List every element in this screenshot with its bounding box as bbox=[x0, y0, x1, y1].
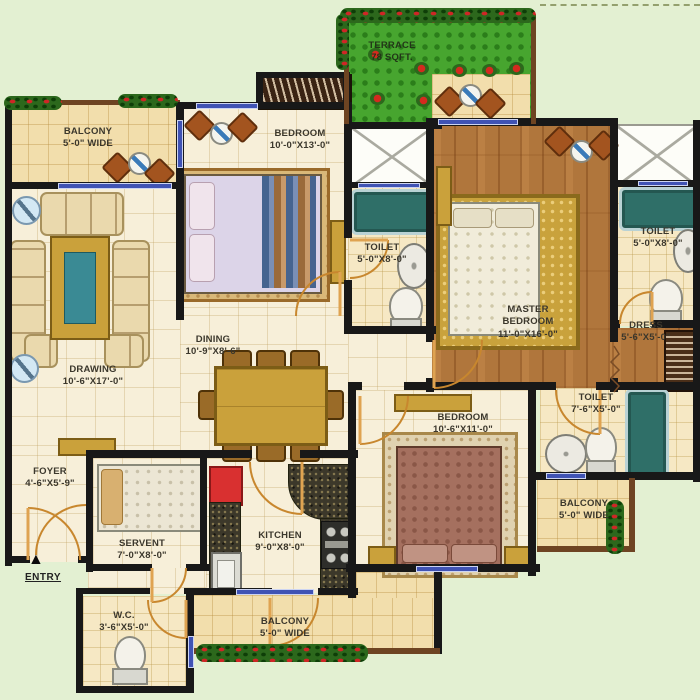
flower-icon bbox=[452, 64, 467, 77]
entry-arrow-icon: ▲ bbox=[28, 552, 44, 568]
room-label-balcony-right: BALCONY 5'-0" WIDE bbox=[540, 498, 628, 523]
room-dims: 5'-0"X8'-0" bbox=[622, 238, 694, 250]
room-label-balcony-bottom: BALCONY 5'-0" WIDE bbox=[230, 616, 340, 641]
room-dims: 10'-0"X13'-0" bbox=[250, 140, 350, 152]
flower-garland-icon bbox=[340, 8, 536, 23]
room-label-terrace: TERRACE 78 SQFT. bbox=[352, 40, 432, 65]
room-dims: 4'-6"X5'-9" bbox=[10, 478, 90, 490]
room-label-kitchen: KITCHEN 9'-0"X8'-0" bbox=[238, 530, 322, 555]
room-name: TERRACE bbox=[352, 40, 432, 52]
room-dims: 7'-6"X5'-0" bbox=[552, 404, 640, 416]
room-dims: 10'-9"X8'-6" bbox=[168, 346, 258, 358]
room-label-bedroom-bottom: BEDROOM 10'-6"X11'-0" bbox=[408, 412, 518, 437]
room-name: KITCHEN bbox=[238, 530, 322, 542]
room-name: BALCONY bbox=[540, 498, 628, 510]
flower-garland-icon bbox=[4, 96, 62, 110]
room-dims: 78 SQFT. bbox=[352, 52, 432, 64]
room-label-toilet-common: TOILET 7'-6"X5'-0" bbox=[552, 392, 640, 417]
room-label-bedroom-top: BEDROOM 10'-0"X13'-0" bbox=[250, 128, 350, 153]
flower-garland-icon bbox=[336, 14, 349, 70]
room-name: W.C. bbox=[84, 610, 164, 622]
room-dims: 5'-0" WIDE bbox=[540, 510, 628, 522]
flower-icon bbox=[370, 92, 385, 105]
room-dims: 10'-6"X17'-0" bbox=[48, 376, 138, 388]
room-name: SERVENT bbox=[98, 538, 186, 550]
room-label-drawing: DRAWING 10'-6"X17'-0" bbox=[48, 364, 138, 389]
entry-label: ENTRY bbox=[10, 572, 76, 583]
room-label-dining: DINING 10'-9"X8'-6" bbox=[168, 334, 258, 359]
room-label-wc: W.C. 3'-6"X5'-0" bbox=[84, 610, 164, 635]
room-label-dress: DRESS 5'-6"X5'-0" bbox=[608, 320, 684, 345]
room-label-servant: SERVENT 7'-0"X8'-0" bbox=[98, 538, 186, 563]
room-label-balcony-top-left: BALCONY 5'-0" WIDE bbox=[28, 126, 148, 151]
room-dims: 7'-0"X8'-0" bbox=[98, 550, 186, 562]
room-name: TOILET bbox=[622, 226, 694, 238]
room-dims: 9'-0"X8'-0" bbox=[238, 542, 322, 554]
flower-icon bbox=[416, 94, 431, 107]
room-name: DRAWING bbox=[48, 364, 138, 376]
floor-plan: ▲ ENTRY BALCONY 5'-0" WIDE BEDROOM 10'-0… bbox=[0, 0, 700, 700]
room-label-foyer: FOYER 4'-6"X5'-9" bbox=[10, 466, 90, 491]
room-name: TOILET bbox=[552, 392, 640, 404]
room-dims: 5'-0"X8'-0" bbox=[348, 254, 416, 266]
room-name: TOILET bbox=[348, 242, 416, 254]
room-name: MASTER BEDROOM bbox=[490, 304, 566, 329]
door-leaf bbox=[28, 240, 652, 646]
doors-overlay bbox=[0, 0, 700, 700]
flower-garland-icon bbox=[118, 94, 178, 108]
room-dims: 5'-0" WIDE bbox=[230, 628, 340, 640]
room-dims: 5'-0" WIDE bbox=[28, 138, 148, 150]
room-name: DRESS bbox=[608, 320, 684, 332]
room-label-toilet-master: TOILET 5'-0"X8'-0" bbox=[622, 226, 694, 251]
room-dims: 3'-6"X5'-0" bbox=[84, 622, 164, 634]
room-name: BALCONY bbox=[28, 126, 148, 138]
room-name: BEDROOM bbox=[250, 128, 350, 140]
curtain-zigzag-icon bbox=[611, 346, 619, 392]
room-dims: 11'-0"X16'-0" bbox=[490, 329, 566, 341]
room-name: DINING bbox=[168, 334, 258, 346]
flower-garland-icon bbox=[196, 644, 368, 662]
room-dims: 10'-6"X11'-0" bbox=[408, 424, 518, 436]
room-name: FOYER bbox=[10, 466, 90, 478]
flower-icon bbox=[509, 62, 524, 75]
room-dims: 5'-6"X5'-0" bbox=[608, 332, 684, 344]
room-name: BALCONY bbox=[230, 616, 340, 628]
room-label-master-bedroom: MASTER BEDROOM 11'-0"X16'-0" bbox=[490, 304, 566, 341]
room-name: BEDROOM bbox=[408, 412, 518, 424]
room-label-toilet-top: TOILET 5'-0"X8'-0" bbox=[348, 242, 416, 267]
flower-icon bbox=[482, 64, 497, 77]
